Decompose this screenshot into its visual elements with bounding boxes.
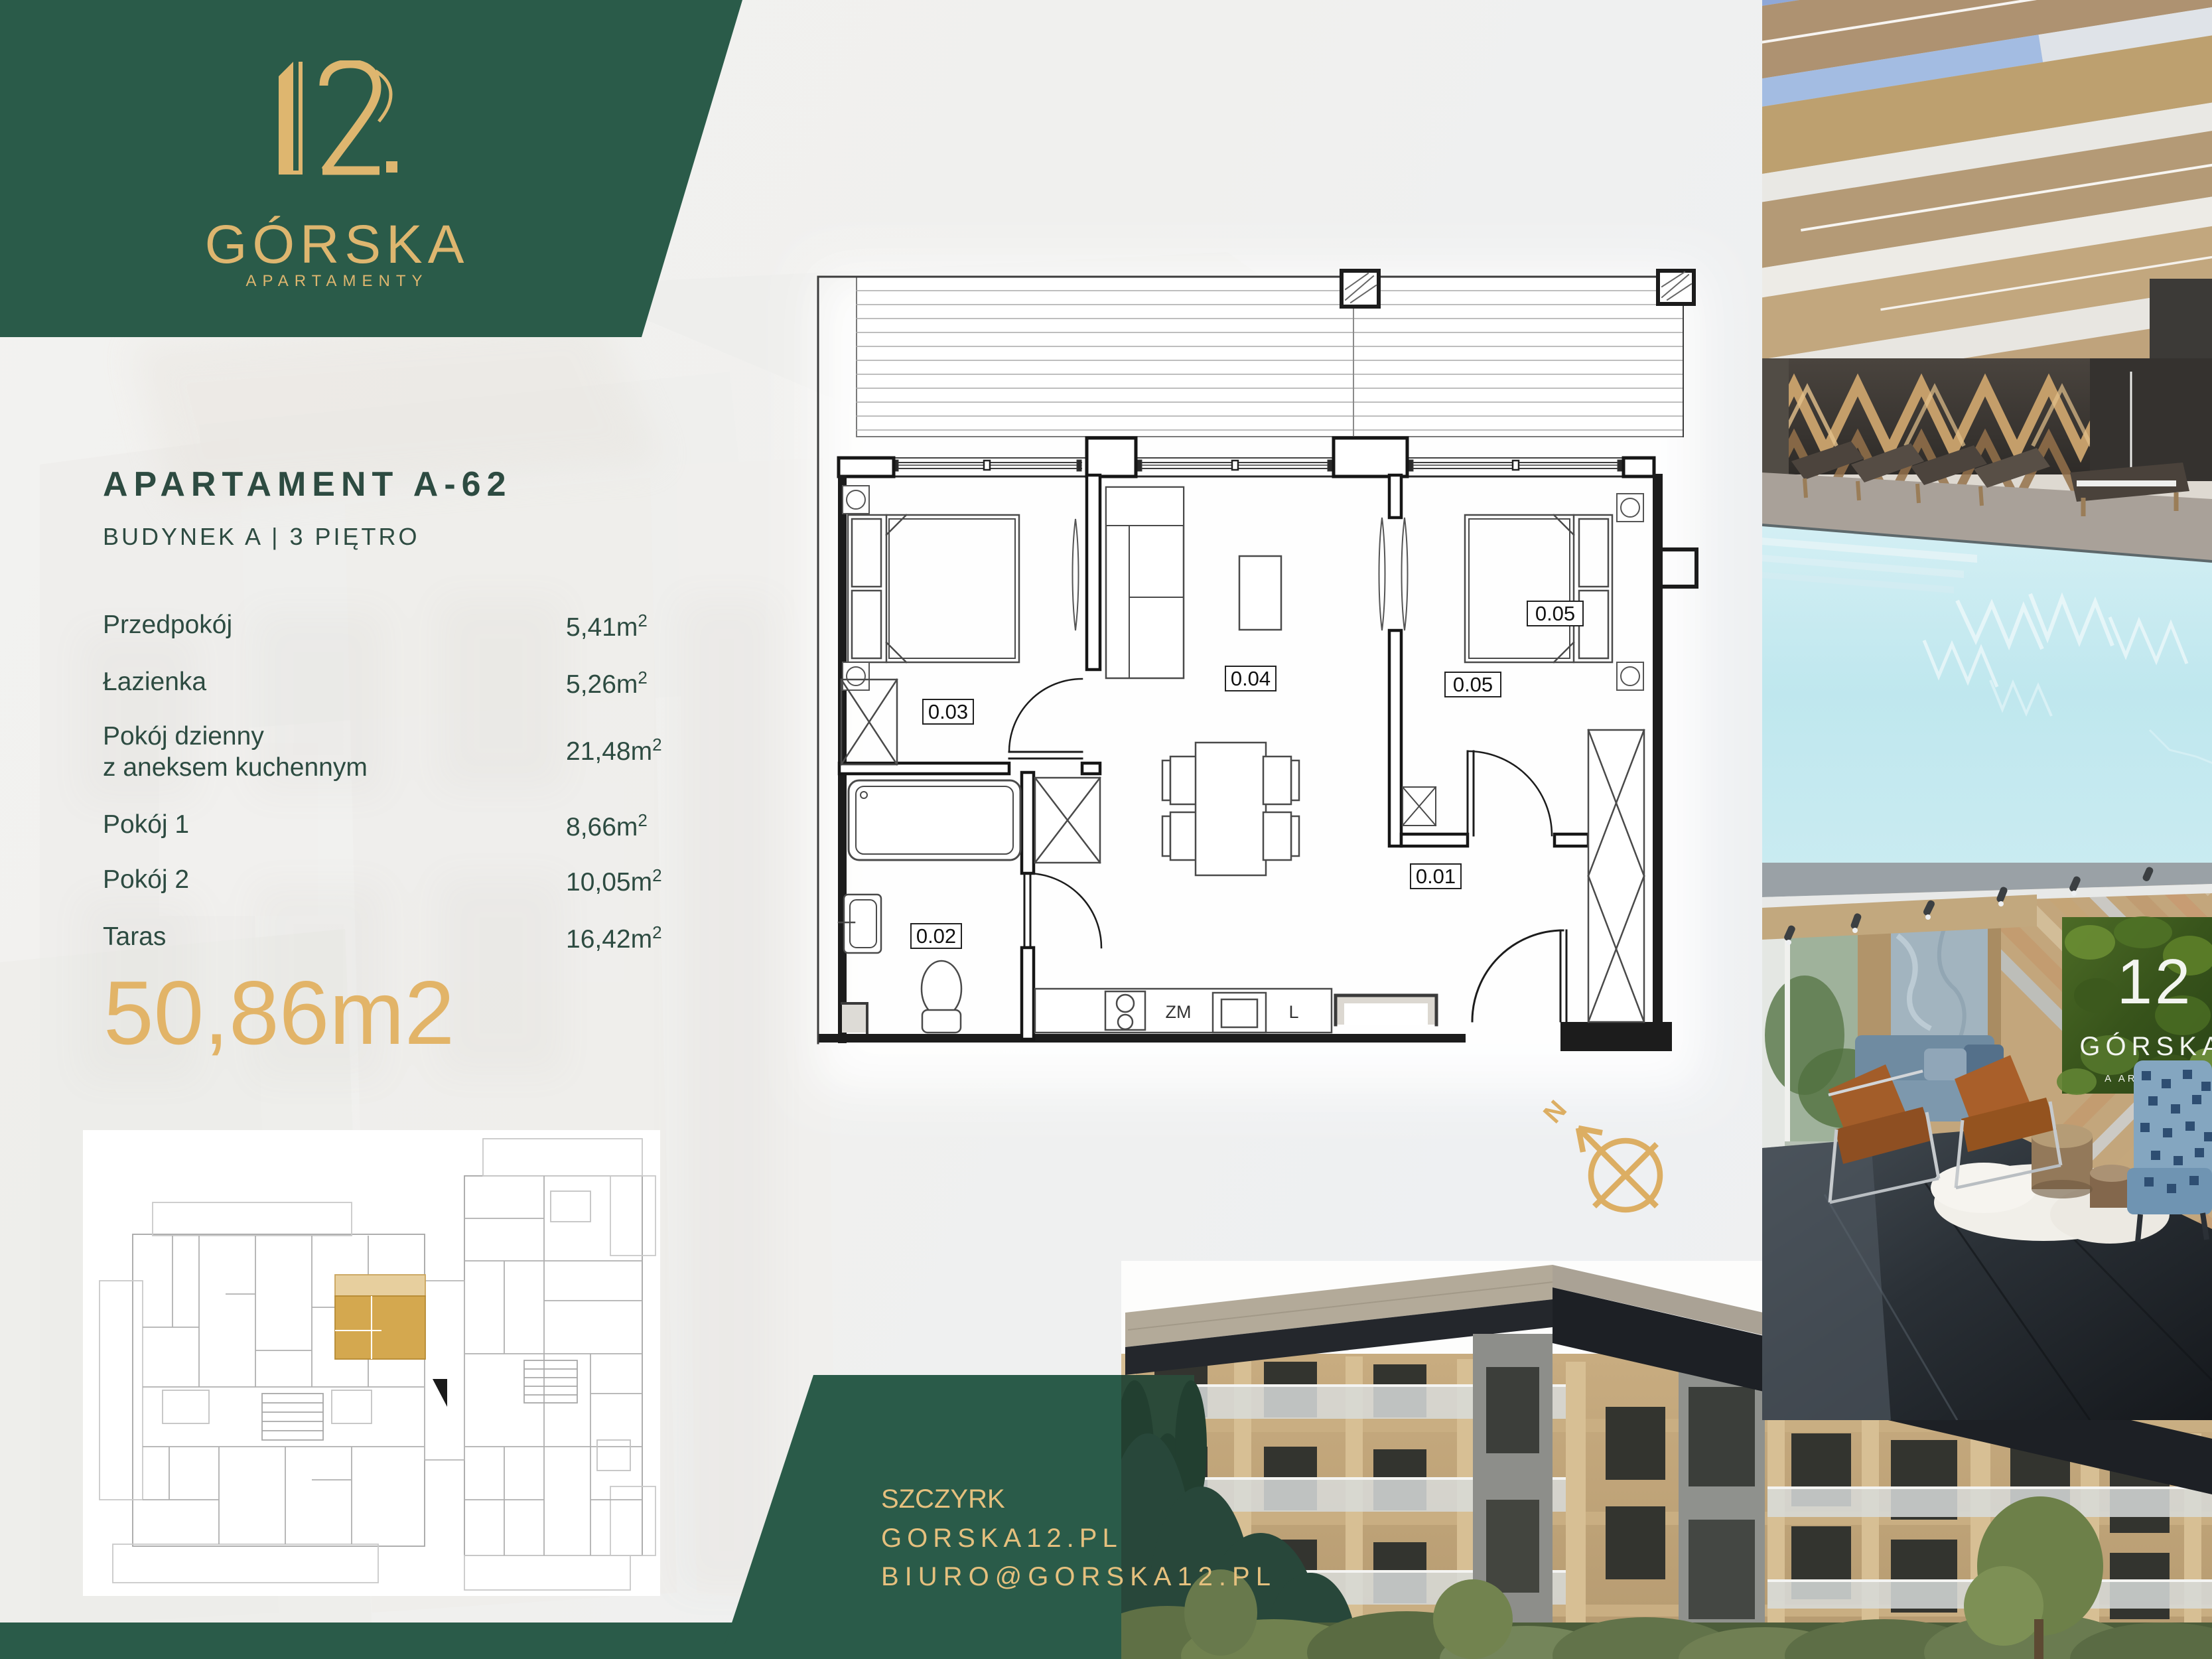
svg-text:0.02: 0.02 — [916, 924, 956, 948]
svg-text:12: 12 — [2117, 946, 2193, 1017]
svg-text:0.03: 0.03 — [928, 700, 968, 723]
svg-text:0.04: 0.04 — [1231, 667, 1271, 690]
svg-text:L: L — [1288, 1002, 1298, 1022]
svg-text:GÓRSKA: GÓRSKA — [2079, 1031, 2212, 1061]
svg-text:0.01: 0.01 — [1416, 865, 1456, 888]
svg-text:ZM: ZM — [1166, 1002, 1192, 1022]
svg-text:N: N — [1538, 1095, 1572, 1129]
svg-text:0.05: 0.05 — [1453, 673, 1493, 696]
svg-text:0.05: 0.05 — [1535, 602, 1575, 625]
